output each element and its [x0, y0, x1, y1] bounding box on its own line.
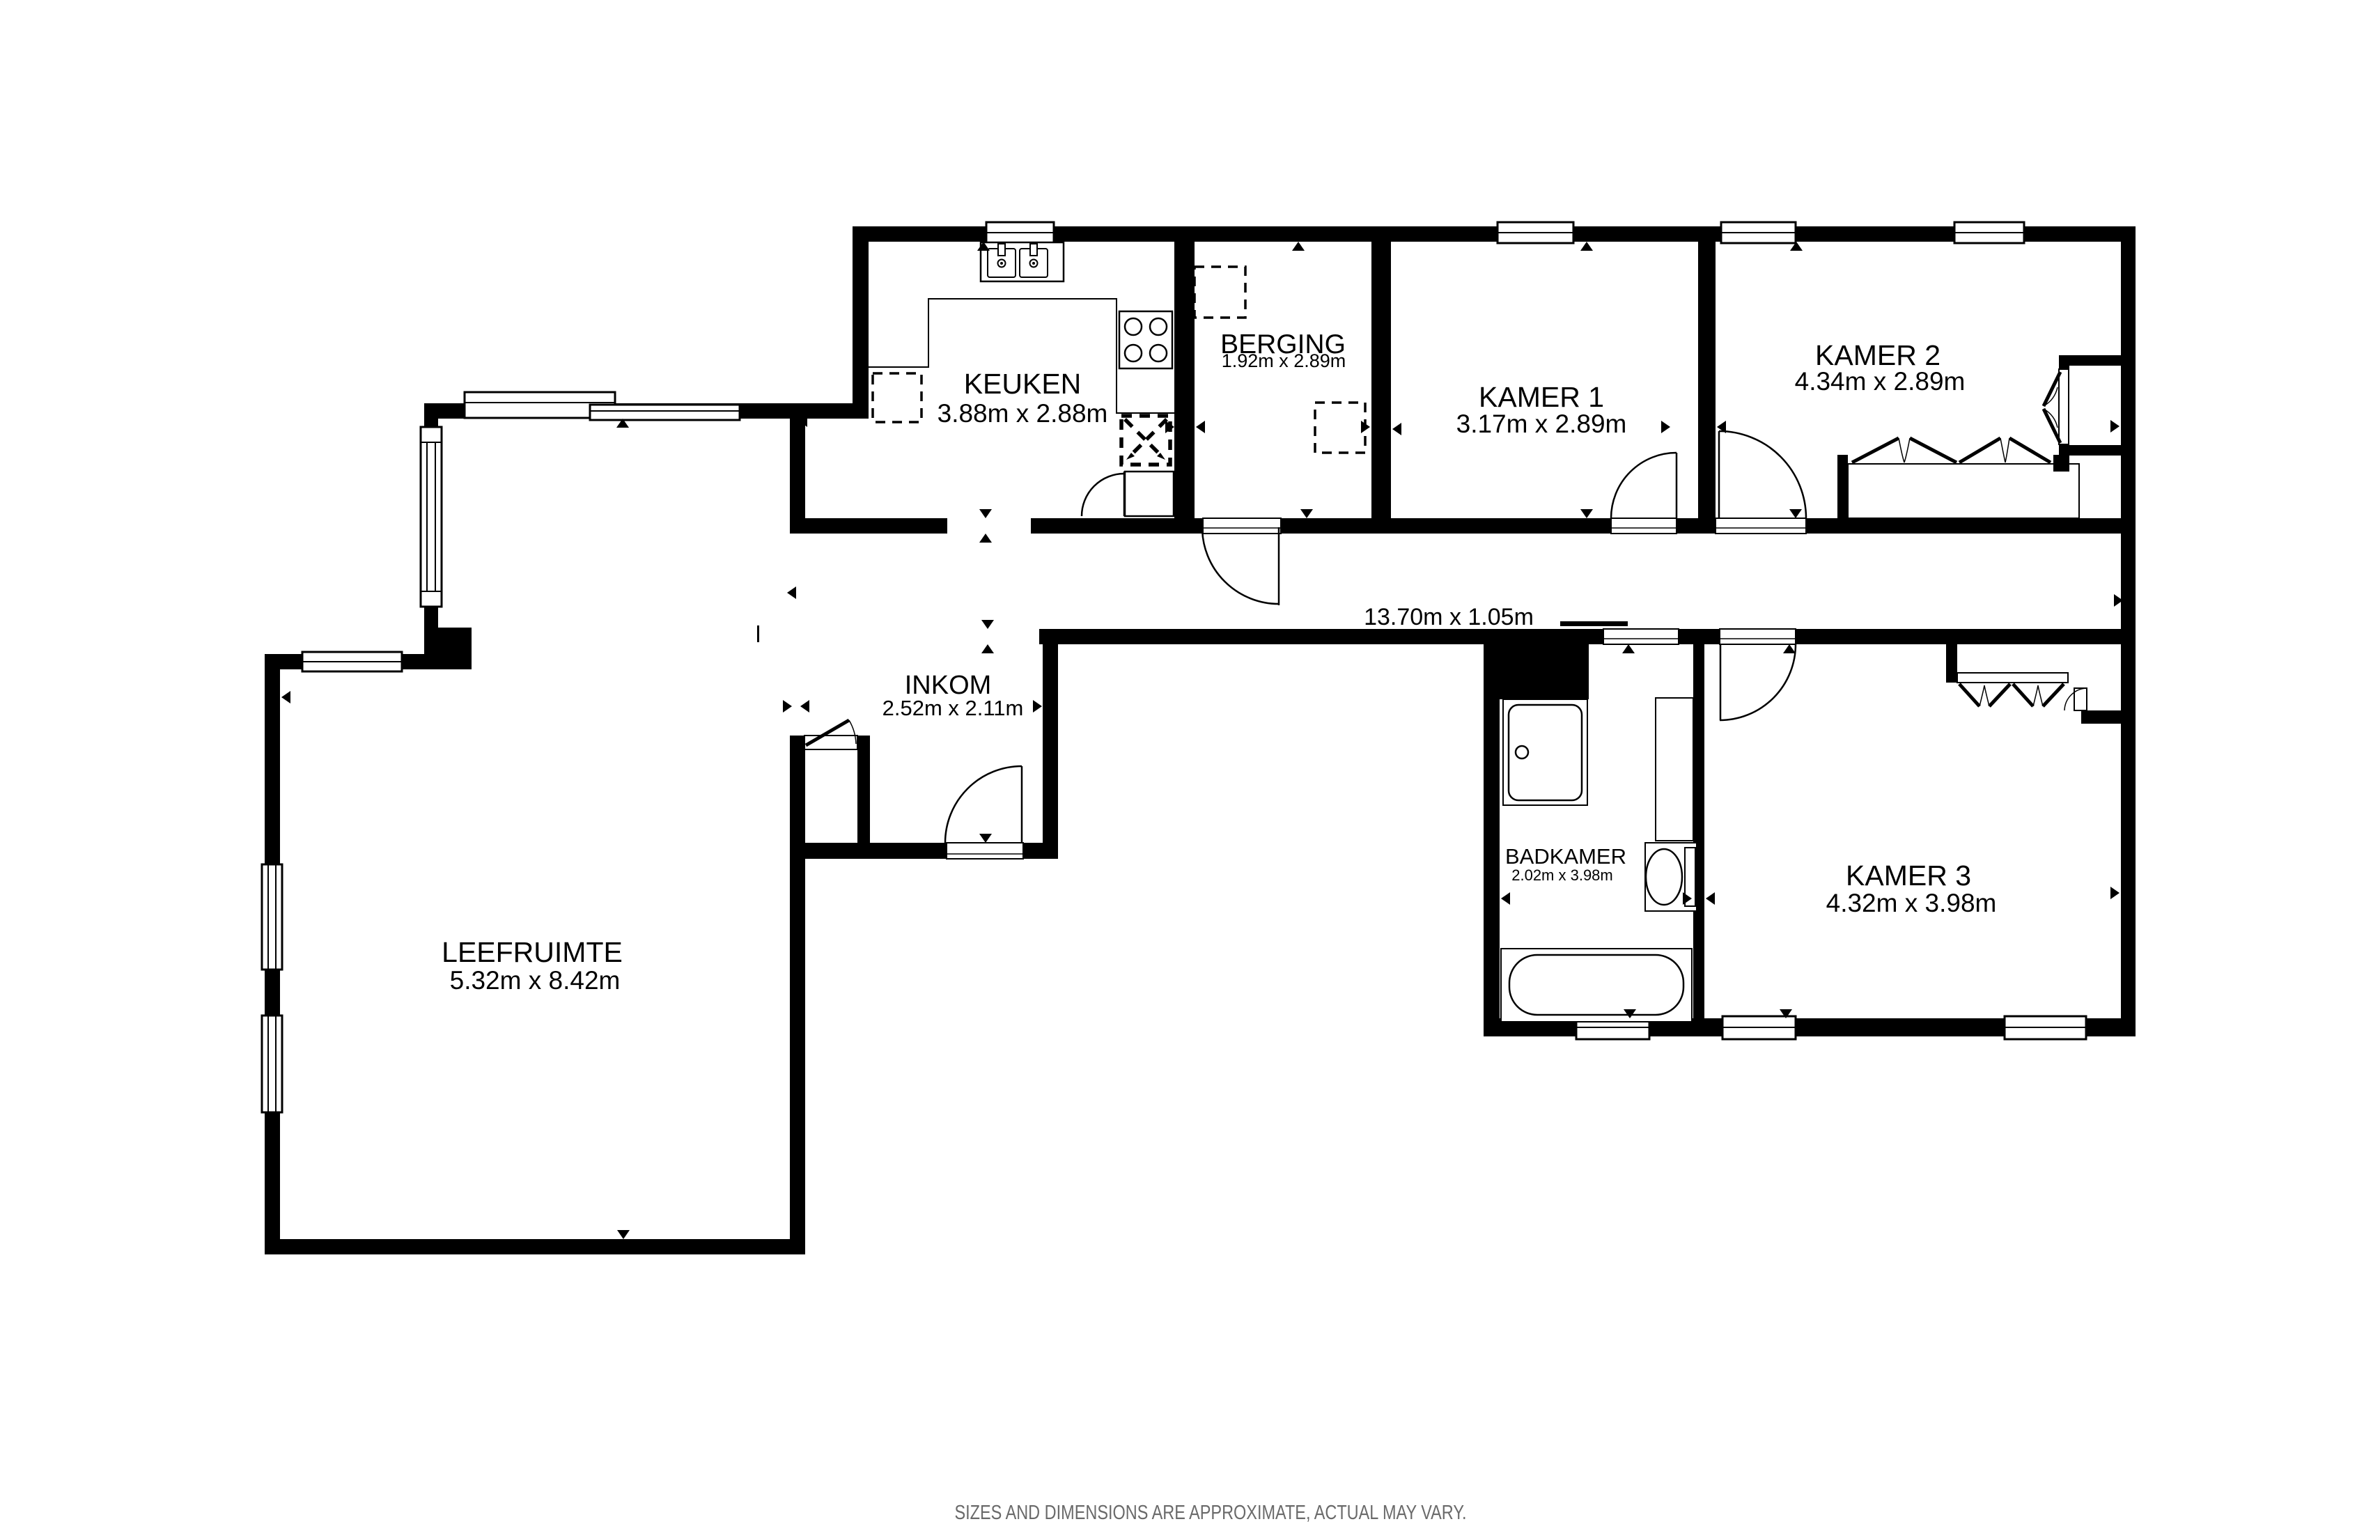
svg-text:BADKAMER: BADKAMER [1505, 844, 1626, 869]
svg-text:4.32m x 3.98m: 4.32m x 3.98m [1826, 889, 1997, 917]
svg-text:2.02m x 3.98m: 2.02m x 3.98m [1511, 866, 1613, 884]
svg-text:3.88m x 2.88m: 3.88m x 2.88m [938, 399, 1108, 428]
svg-text:LEEFRUIMTE: LEEFRUIMTE [442, 936, 623, 968]
svg-text:1.92m x 2.89m: 1.92m x 2.89m [1222, 350, 1346, 371]
svg-text:5.32m x 8.42m: 5.32m x 8.42m [450, 966, 621, 995]
svg-text:SIZES AND DIMENSIONS ARE APPRO: SIZES AND DIMENSIONS ARE APPROXIMATE, AC… [955, 1502, 1467, 1524]
svg-text:KAMER 3: KAMER 3 [1846, 860, 1971, 892]
svg-text:KEUKEN: KEUKEN [964, 368, 1082, 400]
svg-text:KAMER 1: KAMER 1 [1479, 381, 1604, 413]
svg-text:13.70m x 1.05m: 13.70m x 1.05m [1364, 604, 1534, 630]
svg-text:3.17m x 2.89m: 3.17m x 2.89m [1456, 410, 1627, 438]
svg-text:2.52m x 2.11m: 2.52m x 2.11m [882, 696, 1024, 720]
svg-text:4.34m x 2.89m: 4.34m x 2.89m [1795, 367, 1966, 396]
